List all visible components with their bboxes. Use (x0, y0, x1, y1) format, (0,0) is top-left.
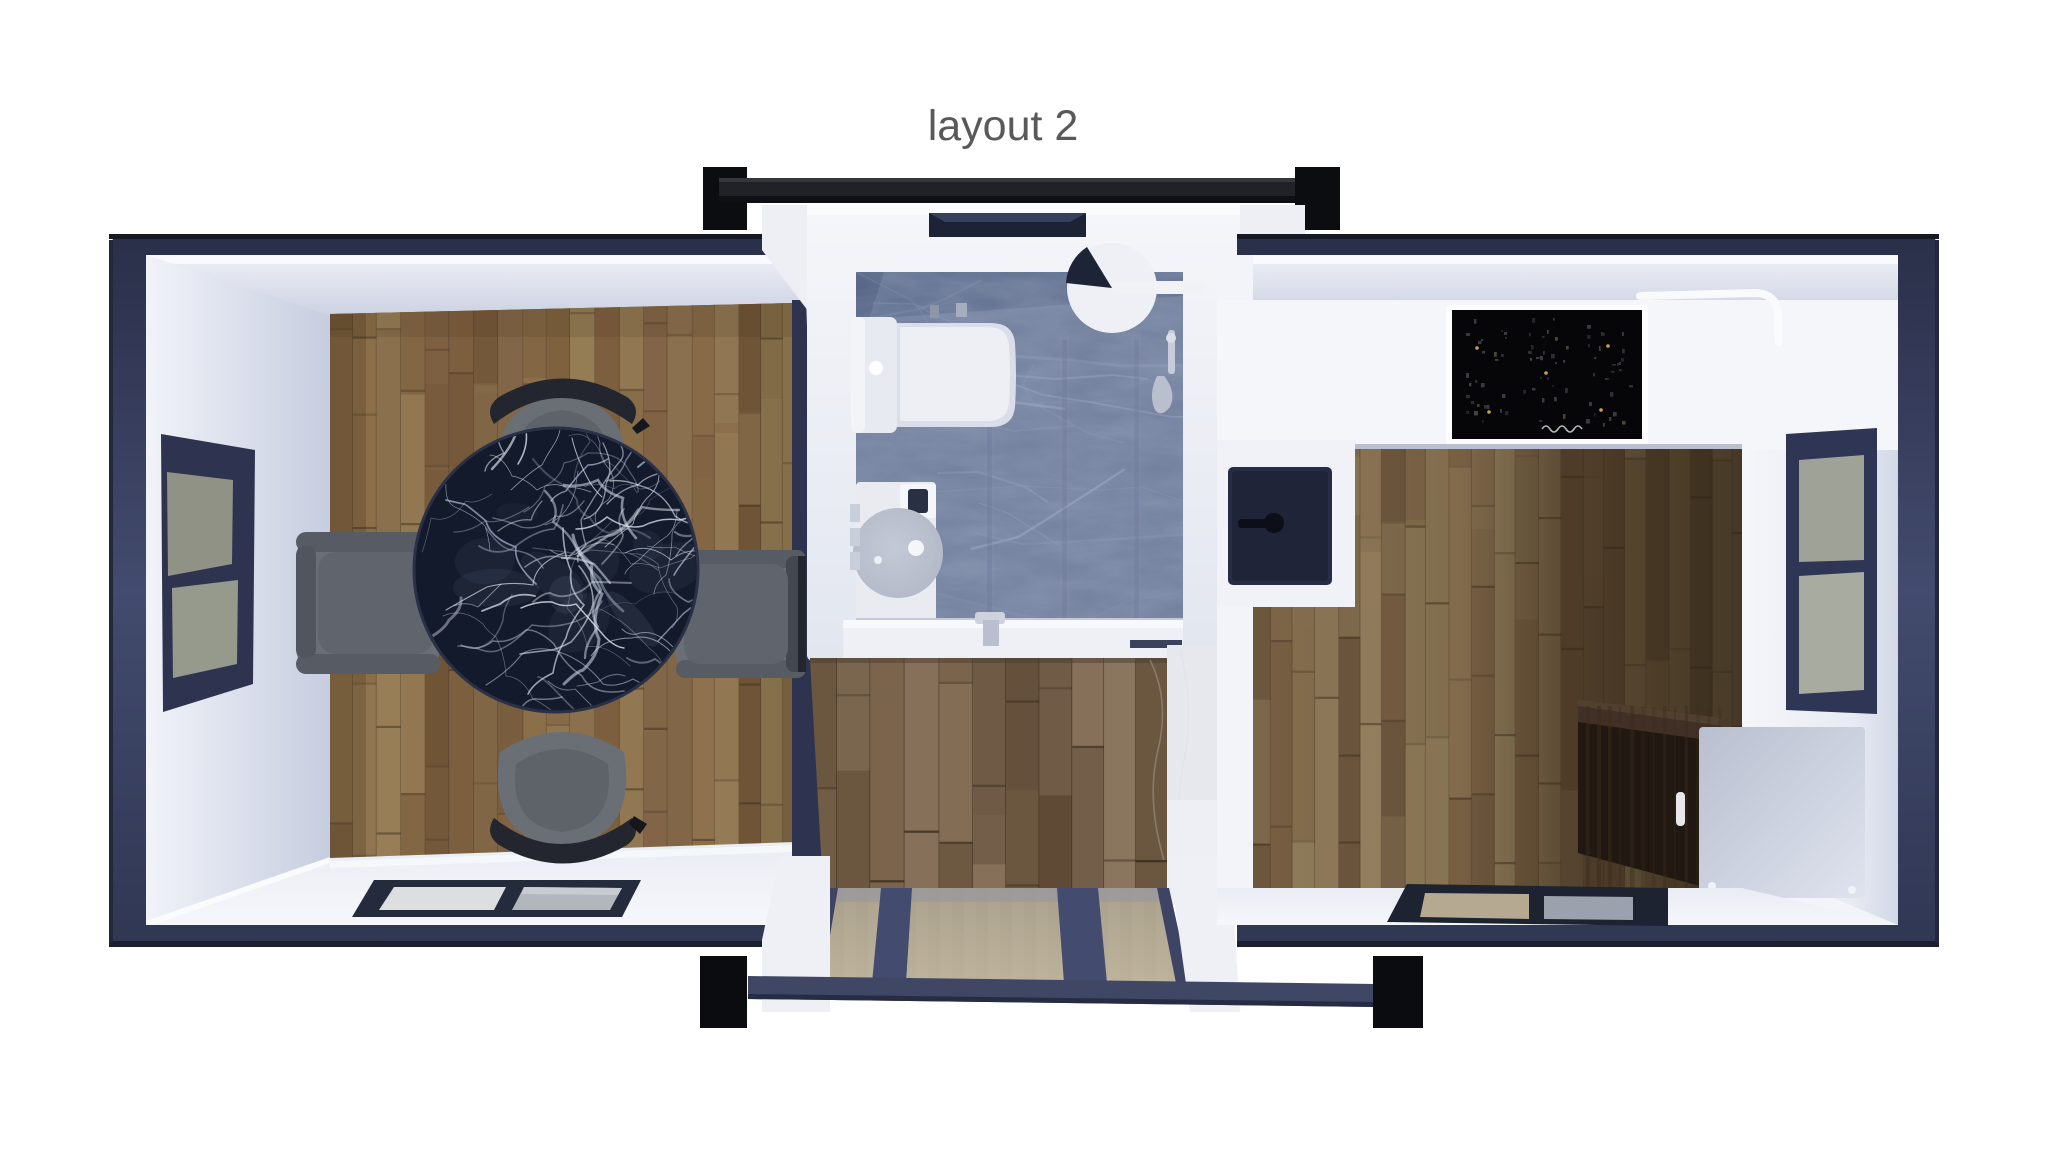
svg-text:layout 2: layout 2 (928, 102, 1079, 150)
